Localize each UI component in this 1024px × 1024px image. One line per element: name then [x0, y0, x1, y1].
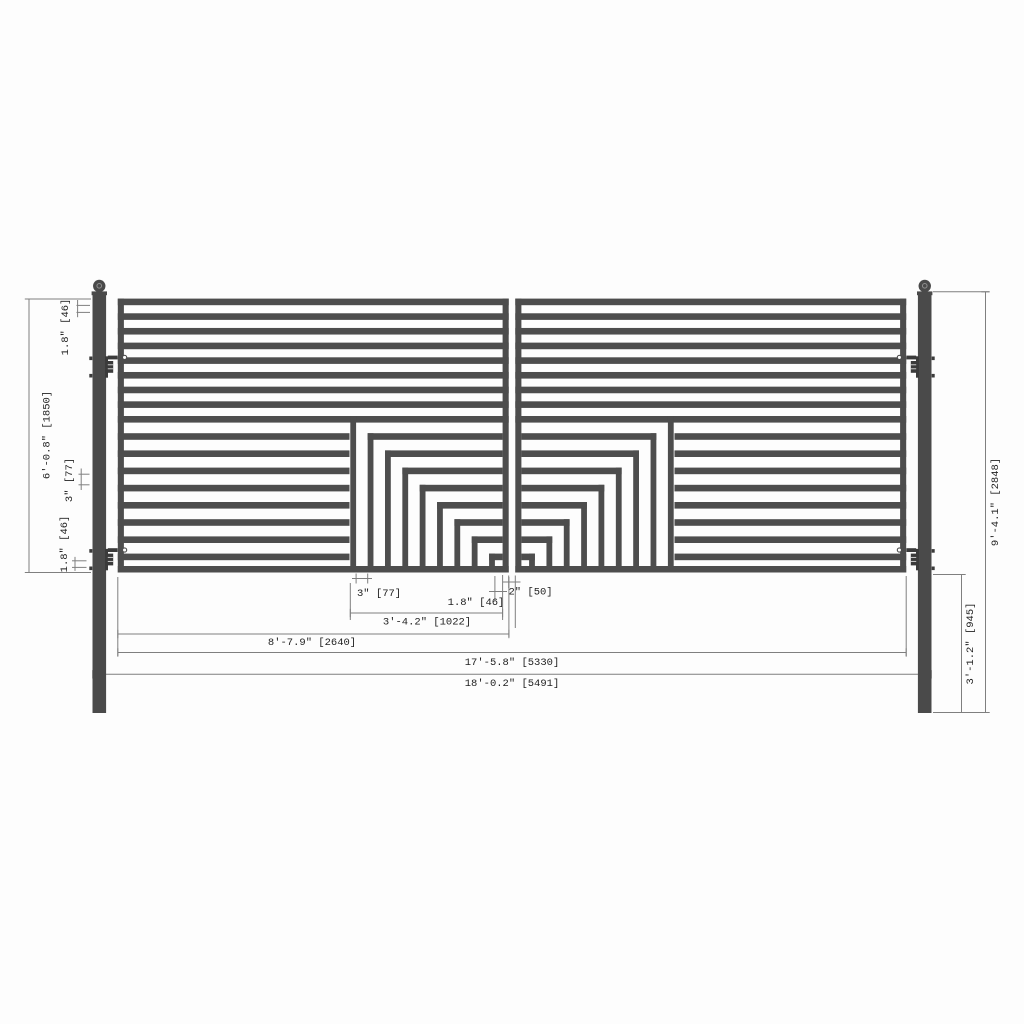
svg-text:9'-4.1" [2848]: 9'-4.1" [2848] [990, 458, 1002, 546]
svg-text:2" [50]: 2" [50] [509, 587, 553, 599]
svg-text:3" [77]: 3" [77] [64, 458, 76, 502]
svg-text:3" [77]: 3" [77] [357, 588, 401, 600]
svg-text:3'-4.2" [1022]: 3'-4.2" [1022] [383, 617, 471, 629]
svg-text:1.8" [46]: 1.8" [46] [60, 299, 72, 356]
svg-text:17'-5.8" [5330]: 17'-5.8" [5330] [465, 657, 560, 669]
svg-text:1.8" [46]: 1.8" [46] [59, 516, 71, 573]
svg-text:8'-7.9" [2640]: 8'-7.9" [2640] [268, 637, 356, 649]
svg-text:3'-1.2" [945]: 3'-1.2" [945] [965, 603, 977, 685]
svg-text:18'-0.2" [5491]: 18'-0.2" [5491] [465, 678, 560, 690]
svg-text:1.8" [46]: 1.8" [46] [448, 597, 505, 609]
svg-text:6'-0.8" [1850]: 6'-0.8" [1850] [42, 391, 54, 479]
